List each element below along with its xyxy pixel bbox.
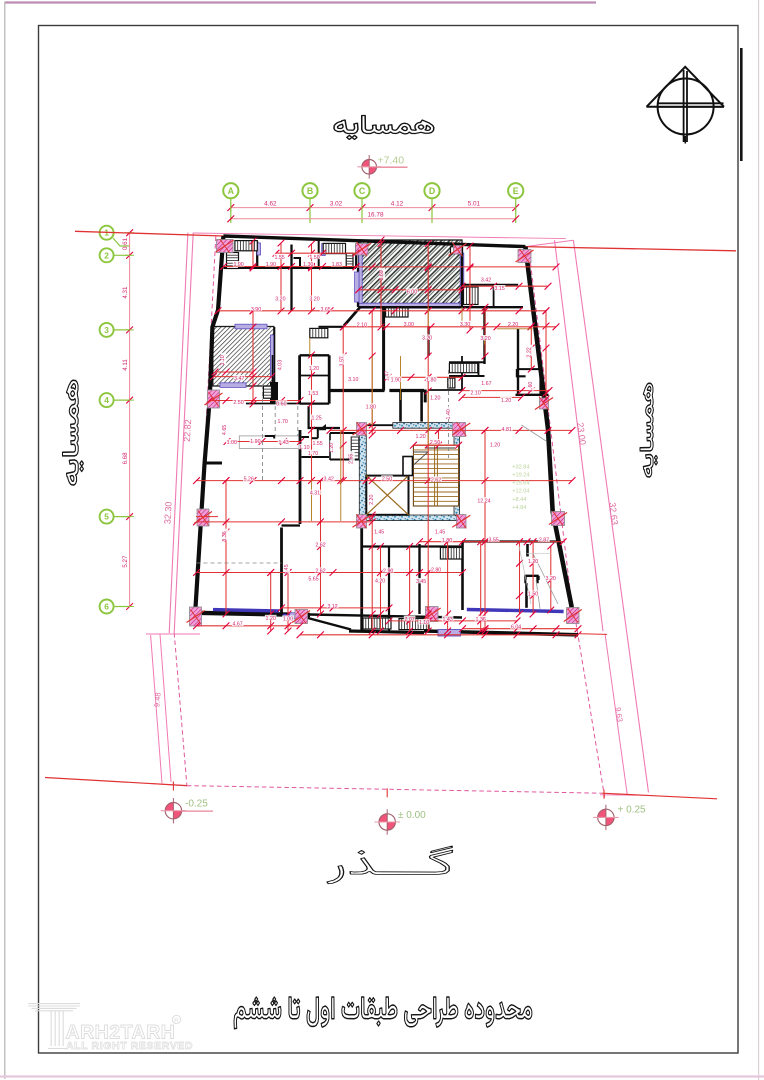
svg-text:4.12: 4.12 bbox=[391, 200, 404, 207]
svg-text:-0.25: -0.25 bbox=[185, 799, 208, 810]
svg-text:2.07: 2.07 bbox=[404, 617, 414, 623]
svg-text:1.90: 1.90 bbox=[233, 262, 243, 268]
svg-text:3.10: 3.10 bbox=[220, 355, 226, 365]
svg-text:1.00: 1.00 bbox=[283, 617, 293, 623]
svg-text:4.67: 4.67 bbox=[232, 622, 242, 628]
svg-text:5: 5 bbox=[104, 512, 109, 522]
svg-text:3.20: 3.20 bbox=[275, 297, 285, 303]
svg-text:1.50: 1.50 bbox=[309, 255, 319, 261]
svg-text:3.90: 3.90 bbox=[251, 307, 261, 313]
svg-text:1.55: 1.55 bbox=[312, 441, 322, 447]
svg-text:9.48: 9.48 bbox=[152, 692, 162, 708]
svg-text:2.65: 2.65 bbox=[349, 454, 355, 464]
svg-text:4.20: 4.20 bbox=[375, 579, 385, 585]
svg-text:1.20: 1.20 bbox=[528, 559, 538, 565]
svg-text:1.20: 1.20 bbox=[501, 398, 511, 404]
svg-text:3.42: 3.42 bbox=[481, 278, 491, 284]
svg-text:3.57: 3.57 bbox=[339, 356, 345, 366]
svg-text:+19.24: +19.24 bbox=[512, 473, 529, 479]
svg-text:+4.84: +4.84 bbox=[512, 505, 526, 511]
svg-text:C: C bbox=[359, 186, 366, 196]
svg-text:1.43: 1.43 bbox=[278, 440, 288, 446]
svg-text:3.55: 3.55 bbox=[489, 538, 499, 544]
svg-text:3.12: 3.12 bbox=[327, 604, 337, 610]
svg-text:2.90: 2.90 bbox=[383, 568, 393, 574]
svg-text:1.45: 1.45 bbox=[435, 529, 445, 535]
svg-text:3.20: 3.20 bbox=[546, 576, 556, 582]
svg-text:2.62: 2.62 bbox=[315, 568, 325, 574]
svg-text:6.04: 6.04 bbox=[511, 625, 521, 631]
svg-text:6: 6 bbox=[104, 602, 109, 612]
svg-text:1.20: 1.20 bbox=[329, 443, 335, 453]
svg-text:1.10: 1.10 bbox=[419, 620, 429, 626]
svg-text:2.20: 2.20 bbox=[508, 322, 518, 328]
svg-text:1.30: 1.30 bbox=[303, 262, 313, 268]
svg-text:4.03: 4.03 bbox=[277, 360, 283, 370]
svg-text:4.65: 4.65 bbox=[222, 425, 228, 435]
svg-text:4.31: 4.31 bbox=[122, 286, 129, 299]
svg-text:3.10: 3.10 bbox=[348, 377, 358, 383]
svg-text:1.90: 1.90 bbox=[250, 439, 260, 445]
svg-text:A: A bbox=[228, 186, 235, 196]
svg-text:E: E bbox=[513, 186, 519, 196]
svg-text:32.30: 32.30 bbox=[162, 501, 173, 524]
svg-text:4.31: 4.31 bbox=[310, 491, 320, 497]
svg-text:3.65: 3.65 bbox=[320, 307, 330, 313]
svg-text:+7.40: +7.40 bbox=[378, 155, 405, 167]
svg-text:1.45: 1.45 bbox=[374, 529, 384, 535]
svg-text:3.69: 3.69 bbox=[379, 270, 385, 280]
svg-text:2.80: 2.80 bbox=[431, 568, 441, 574]
svg-text:2.20: 2.20 bbox=[369, 494, 375, 504]
svg-text:1.80: 1.80 bbox=[366, 404, 376, 410]
svg-text:1.80: 1.80 bbox=[442, 538, 452, 544]
svg-text:3.00: 3.00 bbox=[404, 322, 414, 328]
svg-text:1.53: 1.53 bbox=[308, 391, 318, 397]
svg-text:2.87: 2.87 bbox=[539, 538, 549, 544]
svg-text:6.00: 6.00 bbox=[407, 289, 417, 295]
svg-text:5.26: 5.26 bbox=[244, 477, 254, 483]
svg-text:3.20: 3.20 bbox=[422, 336, 432, 342]
svg-text:1.40: 1.40 bbox=[446, 409, 452, 419]
svg-text:+15.64: +15.64 bbox=[512, 481, 529, 487]
svg-text:1.90: 1.90 bbox=[266, 262, 276, 268]
svg-text:1.20: 1.20 bbox=[430, 396, 440, 402]
svg-text:1.25: 1.25 bbox=[311, 415, 321, 421]
svg-text:3.30: 3.30 bbox=[460, 322, 470, 328]
svg-text:B: B bbox=[307, 186, 313, 196]
svg-text:5.65: 5.65 bbox=[308, 577, 318, 583]
svg-text:3.15: 3.15 bbox=[494, 286, 504, 292]
svg-text:2.10: 2.10 bbox=[357, 322, 367, 328]
svg-text:5.27: 5.27 bbox=[122, 555, 129, 568]
svg-text:2.10: 2.10 bbox=[470, 391, 480, 397]
svg-text:22.82: 22.82 bbox=[182, 419, 193, 442]
svg-text:1.83: 1.83 bbox=[332, 262, 342, 268]
svg-text:1.55: 1.55 bbox=[274, 255, 284, 261]
svg-text:1.00: 1.00 bbox=[227, 440, 237, 446]
svg-text:2: 2 bbox=[104, 250, 109, 260]
svg-text:4.45: 4.45 bbox=[284, 564, 290, 574]
svg-text:2.50: 2.50 bbox=[382, 476, 392, 482]
svg-text:1.50: 1.50 bbox=[528, 592, 538, 598]
svg-text:ALL RIGHT RESERVED: ALL RIGHT RESERVED bbox=[66, 1040, 193, 1052]
svg-text:D: D bbox=[429, 186, 435, 196]
svg-text:1.43: 1.43 bbox=[442, 617, 452, 623]
svg-text:2.50: 2.50 bbox=[430, 440, 440, 446]
svg-text:1.70: 1.70 bbox=[308, 451, 318, 457]
svg-text:1.20: 1.20 bbox=[490, 443, 500, 449]
svg-text:3.20: 3.20 bbox=[309, 297, 319, 303]
svg-text:3.47: 3.47 bbox=[234, 376, 244, 382]
svg-text:1.20: 1.20 bbox=[309, 366, 319, 372]
svg-text:3.45: 3.45 bbox=[416, 579, 426, 585]
svg-text:3.42: 3.42 bbox=[324, 477, 334, 483]
svg-text:4.11: 4.11 bbox=[122, 359, 129, 371]
svg-text:6.68: 6.68 bbox=[122, 452, 129, 465]
svg-text:1.60: 1.60 bbox=[528, 382, 534, 392]
svg-text:4: 4 bbox=[104, 395, 109, 405]
svg-text:3.20: 3.20 bbox=[480, 336, 490, 342]
svg-text:1.67: 1.67 bbox=[481, 381, 491, 387]
svg-text:R: R bbox=[174, 1017, 179, 1024]
svg-text:1.36: 1.36 bbox=[476, 617, 486, 623]
svg-text:+32.84: +32.84 bbox=[512, 464, 529, 470]
svg-text:4.81: 4.81 bbox=[502, 427, 512, 433]
svg-text:2.62: 2.62 bbox=[431, 477, 441, 483]
svg-text:5.01: 5.01 bbox=[468, 200, 481, 207]
svg-text:1.20: 1.20 bbox=[266, 616, 276, 622]
svg-text:0.61: 0.61 bbox=[122, 237, 129, 250]
svg-text:3.02: 3.02 bbox=[330, 200, 343, 207]
svg-text:2.22: 2.22 bbox=[527, 347, 533, 357]
svg-text:3: 3 bbox=[104, 325, 109, 335]
svg-text:+ 0.25: + 0.25 bbox=[618, 805, 647, 816]
svg-text:1.80: 1.80 bbox=[426, 377, 436, 383]
svg-text:± 0.00: ± 0.00 bbox=[398, 810, 426, 821]
svg-text:+8.44: +8.44 bbox=[512, 497, 526, 503]
svg-text:0.60: 0.60 bbox=[276, 401, 286, 407]
svg-text:12.24: 12.24 bbox=[477, 498, 490, 504]
svg-text:1.90: 1.90 bbox=[391, 378, 401, 384]
svg-text:4.62: 4.62 bbox=[264, 200, 277, 207]
svg-text:16.78: 16.78 bbox=[368, 212, 384, 219]
svg-text:2.62: 2.62 bbox=[315, 543, 325, 549]
svg-text:2.50: 2.50 bbox=[233, 400, 243, 406]
svg-text:+12.04: +12.04 bbox=[512, 489, 529, 495]
svg-text:1.70: 1.70 bbox=[278, 419, 288, 425]
svg-text:1.20: 1.20 bbox=[415, 434, 425, 440]
svg-text:8.36: 8.36 bbox=[222, 531, 228, 541]
